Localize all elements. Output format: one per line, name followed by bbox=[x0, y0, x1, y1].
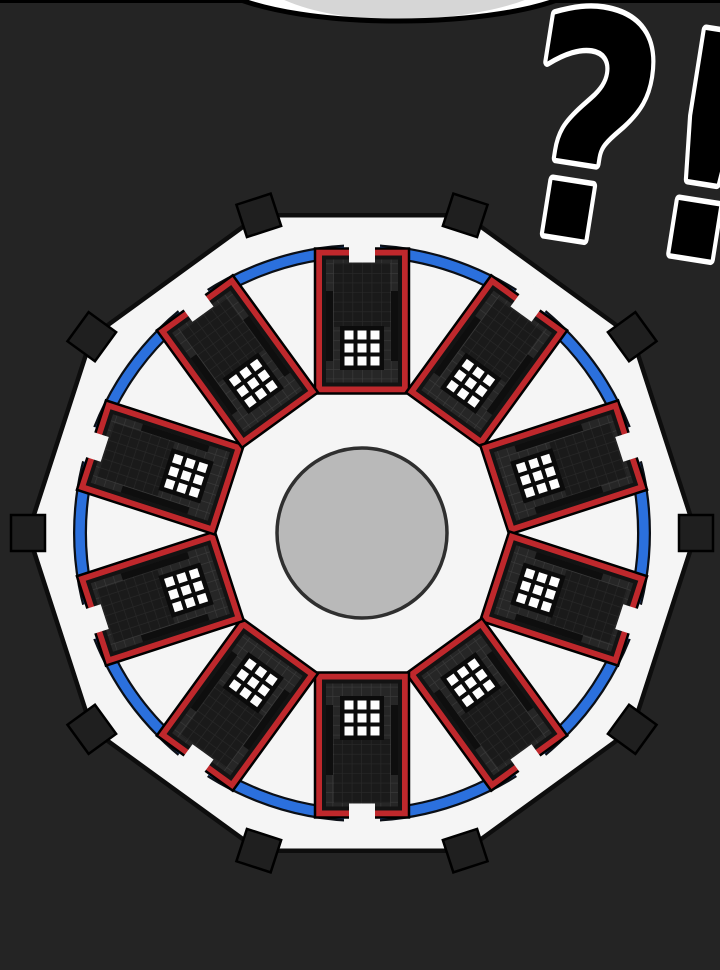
gate-tab bbox=[11, 515, 45, 551]
cell-block-building bbox=[315, 247, 409, 394]
sector bbox=[315, 231, 409, 394]
gate-tab bbox=[679, 515, 713, 551]
sector bbox=[315, 673, 409, 836]
panel-artwork: ?! bbox=[0, 0, 720, 970]
cell-block-building bbox=[315, 673, 409, 820]
comic-panel: ?! bbox=[0, 0, 720, 970]
central-courtyard bbox=[277, 448, 447, 618]
